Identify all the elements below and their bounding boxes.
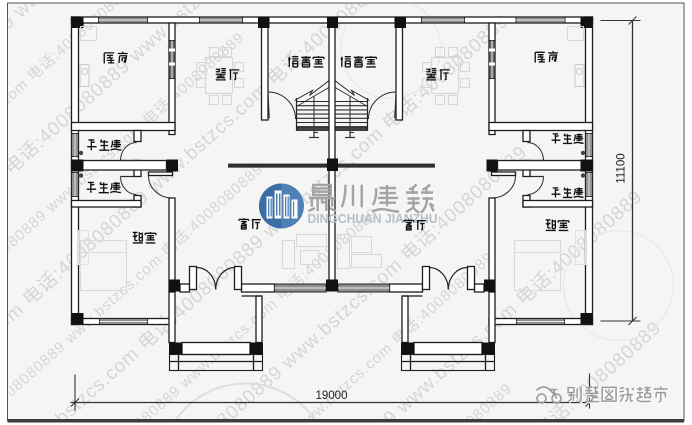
svg-text:11100: 11100	[616, 153, 628, 183]
svg-text:19000: 19000	[316, 390, 348, 402]
